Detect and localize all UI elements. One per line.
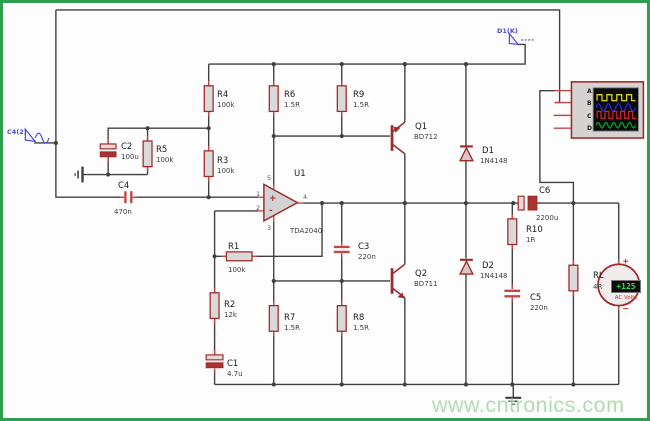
voltmeter-plus-mark bbox=[623, 259, 628, 264]
label-d1-val: 1N4148 bbox=[480, 158, 508, 165]
label-q2-val: BD711 bbox=[414, 281, 438, 288]
label-r10-val: 1R bbox=[526, 237, 535, 244]
label-r4-val: 100k bbox=[217, 102, 234, 109]
resistor-r2 bbox=[210, 293, 219, 319]
scope-channel-a: A bbox=[587, 89, 592, 95]
opamp-pin-2: 2 bbox=[256, 205, 260, 212]
label-q2-ref: Q2 bbox=[415, 270, 427, 279]
voltage-probe-icon bbox=[509, 34, 535, 45]
resistor-r9 bbox=[337, 86, 346, 112]
opamp-plus-sign: + bbox=[269, 195, 277, 204]
label-r9-val: 1.5R bbox=[353, 102, 369, 109]
junction-dots bbox=[54, 62, 576, 387]
capacitor-c1 bbox=[206, 355, 223, 368]
circuit-drawing bbox=[3, 3, 647, 418]
label-u1-ref: U1 bbox=[294, 170, 306, 179]
resistor-r8 bbox=[337, 306, 346, 332]
diode-d1 bbox=[460, 146, 473, 160]
resistor-r5 bbox=[143, 141, 152, 167]
output-probe-label: D1(K) bbox=[497, 28, 518, 35]
label-c2-ref: C2 bbox=[121, 143, 132, 152]
label-q1-ref: Q1 bbox=[415, 123, 427, 132]
label-r5-ref: R5 bbox=[156, 146, 167, 155]
label-r2-ref: R2 bbox=[224, 301, 235, 310]
label-c5-ref: C5 bbox=[530, 294, 541, 303]
label-r9-ref: R9 bbox=[353, 91, 364, 100]
transistor-q1 bbox=[392, 122, 405, 154]
capacitor-c4 bbox=[125, 191, 131, 203]
label-r1-ref: R1 bbox=[228, 243, 239, 252]
label-r6-ref: R6 bbox=[284, 91, 295, 100]
opamp-pin-3: 3 bbox=[267, 225, 271, 232]
label-r3-ref: R3 bbox=[217, 157, 228, 166]
label-r10-ref: R10 bbox=[526, 226, 543, 235]
capacitor-c3 bbox=[334, 247, 350, 252]
resistor-r6 bbox=[269, 86, 278, 112]
label-c3-val: 220n bbox=[358, 254, 376, 261]
label-r7-val: 1.5R bbox=[284, 325, 300, 332]
scope-channel-d: D bbox=[587, 126, 592, 132]
label-c2-val: 100u bbox=[121, 154, 139, 161]
label-r1-val: 100k bbox=[228, 267, 245, 274]
label-q1-val: BD712 bbox=[414, 134, 438, 141]
scope-channel-b: B bbox=[587, 101, 592, 107]
label-r4-ref: R4 bbox=[217, 91, 228, 100]
label-rl-val: 4R bbox=[593, 284, 602, 291]
label-r2-val: 12k bbox=[224, 312, 237, 319]
capacitor-c5 bbox=[504, 291, 520, 296]
opamp-pin-5: 5 bbox=[267, 175, 271, 182]
resistor-r3 bbox=[204, 151, 213, 177]
schematic-canvas: R4 100k R3 100k R5 100k C2 100u C4 470n … bbox=[0, 0, 650, 421]
label-c1-val: 4.7u bbox=[227, 371, 243, 378]
resistor-r4 bbox=[204, 86, 213, 112]
oscilloscope bbox=[571, 82, 643, 138]
label-c1-ref: C1 bbox=[227, 360, 238, 369]
capacitor-c2 bbox=[100, 144, 116, 157]
voltmeter-unit-label: AC Volts bbox=[604, 296, 648, 302]
label-c5-val: 220n bbox=[530, 305, 548, 312]
label-c4-val: 470n bbox=[114, 209, 132, 216]
watermark-text: www.cntronics.com bbox=[432, 393, 625, 418]
resistor-r7 bbox=[269, 306, 278, 332]
label-r6-val: 1.5R bbox=[284, 102, 300, 109]
scope-channel-c: C bbox=[587, 114, 591, 120]
label-r3-val: 100k bbox=[217, 168, 234, 175]
capacitor-c6 bbox=[518, 196, 537, 210]
label-c6-ref: C6 bbox=[539, 187, 550, 196]
ground-symbol-left bbox=[75, 167, 87, 183]
label-d2-val: 1N4148 bbox=[480, 273, 508, 280]
opamp-pin-4: 4 bbox=[303, 194, 307, 201]
signal-generator-icon bbox=[25, 129, 49, 143]
label-c4-ref: C4 bbox=[118, 182, 129, 191]
input-generator-label: C4(2) bbox=[7, 129, 27, 136]
transistor-q2 bbox=[392, 264, 405, 298]
voltmeter-display: +125 bbox=[611, 280, 641, 293]
label-r8-val: 1.5R bbox=[353, 325, 369, 332]
label-d1-ref: D1 bbox=[482, 147, 494, 156]
label-r5-val: 100k bbox=[156, 157, 173, 164]
label-r7-ref: R7 bbox=[284, 314, 295, 323]
resistor-r10 bbox=[508, 219, 517, 245]
resistor-r1 bbox=[226, 252, 252, 261]
label-c6-val: 2200u bbox=[536, 215, 558, 222]
label-d2-ref: D2 bbox=[482, 262, 494, 271]
label-r8-ref: R8 bbox=[353, 314, 364, 323]
resistor-rl bbox=[569, 265, 578, 291]
opamp-pin-1: 1 bbox=[256, 191, 260, 198]
label-rl-ref: RL bbox=[593, 272, 604, 281]
diode-d2 bbox=[460, 260, 473, 274]
label-c3-ref: C3 bbox=[358, 243, 369, 252]
opamp-minus-sign: - bbox=[269, 207, 273, 216]
label-u1-val: TDA2040 bbox=[290, 228, 322, 235]
